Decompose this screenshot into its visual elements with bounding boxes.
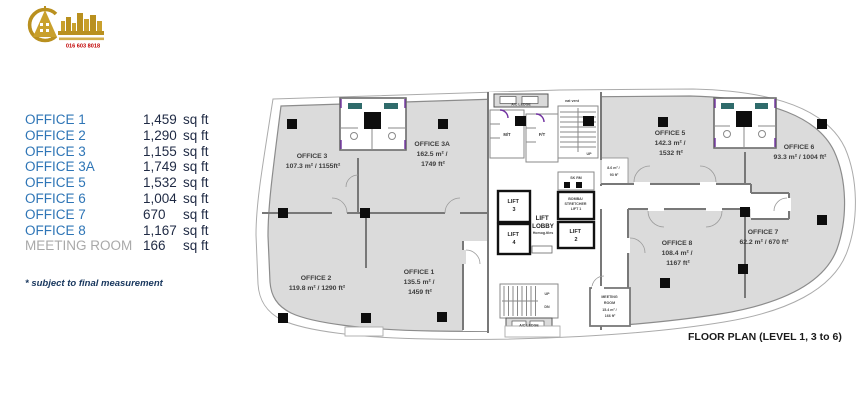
floor-plan-drawing: OFFICE 3 107.3 m² / 1155ft² OFFICE 3A 16… bbox=[248, 78, 867, 360]
legend-row: OFFICE 11,459sq ft bbox=[25, 112, 255, 128]
legend-office-label: OFFICE 3 bbox=[25, 144, 143, 160]
legend-area-unit: sq ft bbox=[183, 238, 209, 254]
legend-area-unit: sq ft bbox=[183, 144, 209, 160]
legend-office-label: OFFICE 7 bbox=[25, 207, 143, 223]
legend-row: OFFICE 21,290sq ft bbox=[25, 128, 255, 144]
legend-office-label: OFFICE 5 bbox=[25, 175, 143, 191]
room-label-office-1: OFFICE 1 135.5 m² / 1459 ft² bbox=[404, 269, 437, 296]
legend-row: OFFICE 61,004sq ft bbox=[25, 191, 255, 207]
legend-row: OFFICE 31,155sq ft bbox=[25, 144, 255, 160]
lift-lobby-finish-label: Homog.tiles bbox=[533, 231, 554, 235]
sk-rm-label: SK RM bbox=[570, 176, 582, 180]
toilet-pod-left bbox=[340, 98, 406, 150]
female-toilet-label: F/T bbox=[539, 132, 546, 137]
legend-row: OFFICE 7670sq ft bbox=[25, 207, 255, 223]
legend-area-unit: sq ft bbox=[183, 128, 209, 144]
floor-plan-caption: FLOOR PLAN (LEVEL 1, 3 to 6) bbox=[688, 331, 842, 343]
legend-area-value: 1,004 bbox=[143, 191, 183, 207]
legend-area-value: 1,459 bbox=[143, 112, 183, 128]
legend-area-value: 1,155 bbox=[143, 144, 183, 160]
logo-phone: 016 603 8018 bbox=[66, 44, 100, 50]
legend-office-label: OFFICE 1 bbox=[25, 112, 143, 128]
legend-area-unit: sq ft bbox=[183, 175, 209, 191]
area-legend: OFFICE 11,459sq ft OFFICE 21,290sq ft OF… bbox=[25, 112, 255, 254]
legend-row: MEETING ROOM166sq ft bbox=[25, 238, 255, 254]
stair-up-bottom-label: UP bbox=[545, 292, 551, 296]
logo-key-building-icon bbox=[30, 6, 104, 41]
legend-area-unit: sq ft bbox=[183, 159, 209, 175]
developer-logo: 016 603 8018 bbox=[25, 5, 110, 57]
nat-vent-label: nat vent bbox=[565, 99, 580, 103]
male-toilet-label: M/T bbox=[503, 132, 511, 137]
legend-row: OFFICE 81,167sq ft bbox=[25, 223, 255, 239]
legend-area-value: 1,290 bbox=[143, 128, 183, 144]
legend-office-label: OFFICE 8 bbox=[25, 223, 143, 239]
ac-ledge-bottom-label: A/C LEDGE bbox=[519, 324, 539, 328]
legend-area-value: 1,749 bbox=[143, 159, 183, 175]
stair-up-top-label: UP bbox=[587, 152, 593, 156]
legend-area-unit: sq ft bbox=[183, 112, 209, 128]
toilet-pod-right bbox=[714, 98, 776, 148]
ac-ledge-top-label: A/C LEDGE bbox=[511, 103, 531, 107]
legend-office-label: OFFICE 3A bbox=[25, 159, 143, 175]
legend-row: OFFICE 3A1,749sq ft bbox=[25, 159, 255, 175]
measurement-footnote: * subject to final measurement bbox=[25, 278, 163, 289]
legend-area-value: 670 bbox=[143, 207, 183, 223]
room-label-office-5: OFFICE 5 142.3 m² / 1532 ft² bbox=[655, 130, 688, 157]
legend-office-label: OFFICE 2 bbox=[25, 128, 143, 144]
legend-area-value: 1,167 bbox=[143, 223, 183, 239]
legend-area-value: 1,532 bbox=[143, 175, 183, 191]
legend-row: OFFICE 51,532sq ft bbox=[25, 175, 255, 191]
room-label-office-8: OFFICE 8 108.4 m² / 1167 ft² bbox=[662, 240, 695, 267]
legend-meeting-room-label: MEETING ROOM bbox=[25, 238, 143, 254]
floor-plan-page: 016 603 8018 OFFICE 11,459sq ft OFFICE 2… bbox=[0, 0, 867, 400]
legend-area-unit: sq ft bbox=[183, 207, 209, 223]
legend-area-value: 166 bbox=[143, 238, 183, 254]
legend-office-label: OFFICE 6 bbox=[25, 191, 143, 207]
stair-dn-label: DN bbox=[544, 305, 550, 309]
legend-area-unit: sq ft bbox=[183, 223, 209, 239]
legend-area-unit: sq ft bbox=[183, 191, 209, 207]
